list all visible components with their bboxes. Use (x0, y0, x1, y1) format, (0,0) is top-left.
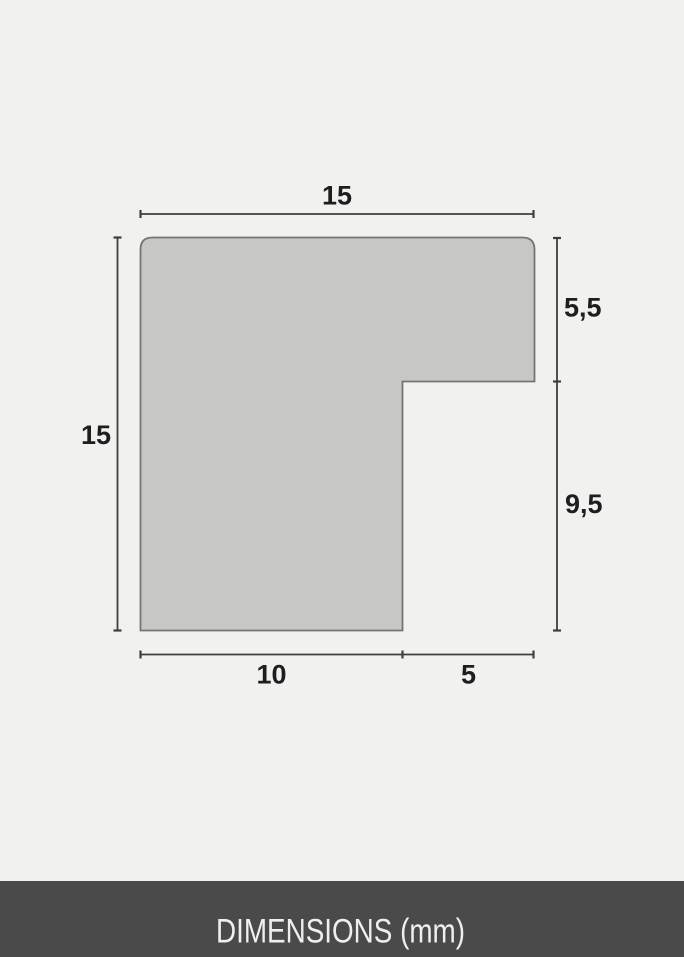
svg-text:10: 10 (256, 660, 286, 690)
svg-text:5,5: 5,5 (564, 293, 602, 323)
svg-text:DIMENSIONS (mm): DIMENSIONS (mm) (216, 913, 465, 951)
svg-text:9,5: 9,5 (565, 489, 603, 519)
svg-text:15: 15 (81, 420, 111, 450)
svg-text:15: 15 (322, 181, 352, 211)
svg-text:5: 5 (461, 660, 476, 690)
